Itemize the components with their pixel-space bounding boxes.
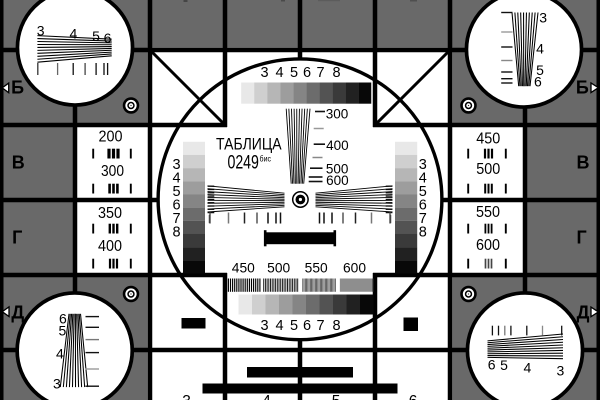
svg-text:450: 450 [476,130,500,147]
svg-text:550: 550 [476,204,500,221]
svg-text:Г: Г [12,228,22,248]
svg-text:В: В [12,153,25,173]
svg-text:8: 8 [332,318,340,334]
svg-text:600: 600 [326,173,349,188]
svg-text:200: 200 [99,128,123,145]
svg-text:6: 6 [303,65,311,81]
svg-text:6: 6 [534,73,542,89]
svg-text:6: 6 [303,318,311,334]
svg-text:550: 550 [305,261,328,276]
svg-text:4: 4 [275,318,283,334]
svg-text:4: 4 [536,40,544,56]
svg-text:5: 5 [290,65,298,81]
svg-text:300: 300 [326,107,349,122]
svg-text:Г: Г [576,228,586,248]
svg-text:4: 4 [262,393,271,400]
svg-text:8: 8 [173,225,181,241]
svg-text:6: 6 [104,30,112,46]
svg-text:5: 5 [290,318,298,334]
svg-text:5: 5 [500,357,508,373]
svg-text:7: 7 [316,318,324,334]
svg-text:Д: Д [577,302,590,322]
svg-text:350: 350 [98,205,122,222]
svg-text:4: 4 [70,26,78,42]
svg-text:500: 500 [476,161,500,178]
svg-text:4: 4 [524,360,532,376]
svg-text:В: В [577,153,590,173]
svg-text:ТАБЛИЦА: ТАБЛИЦА [216,135,282,154]
svg-text:400: 400 [98,238,122,255]
svg-text:6: 6 [488,356,496,372]
svg-text:500: 500 [267,261,290,276]
svg-text:Б: Б [11,78,24,98]
svg-text:600: 600 [476,237,500,254]
svg-text:0249: 0249 [227,153,259,174]
svg-text:600: 600 [343,261,366,276]
svg-text:3: 3 [557,363,565,379]
svg-text:бис: бис [260,154,272,164]
svg-text:3: 3 [260,318,268,334]
svg-text:3: 3 [182,393,191,400]
svg-text:4: 4 [56,345,64,361]
svg-text:5: 5 [59,323,67,339]
svg-text:3: 3 [260,65,268,81]
svg-text:5: 5 [332,393,341,400]
svg-text:3: 3 [539,10,547,26]
svg-text:4: 4 [275,65,283,81]
svg-text:8: 8 [419,225,427,241]
svg-text:7: 7 [316,65,324,81]
svg-text:400: 400 [326,138,349,153]
svg-text:450: 450 [232,261,255,276]
svg-text:6: 6 [409,393,418,400]
svg-text:8: 8 [332,65,340,81]
svg-text:3: 3 [37,23,45,39]
svg-text:Б: Б [576,78,589,98]
svg-text:3: 3 [53,376,61,392]
svg-text:5: 5 [92,28,100,44]
svg-text:Д: Д [11,302,24,322]
svg-text:300: 300 [101,163,124,180]
